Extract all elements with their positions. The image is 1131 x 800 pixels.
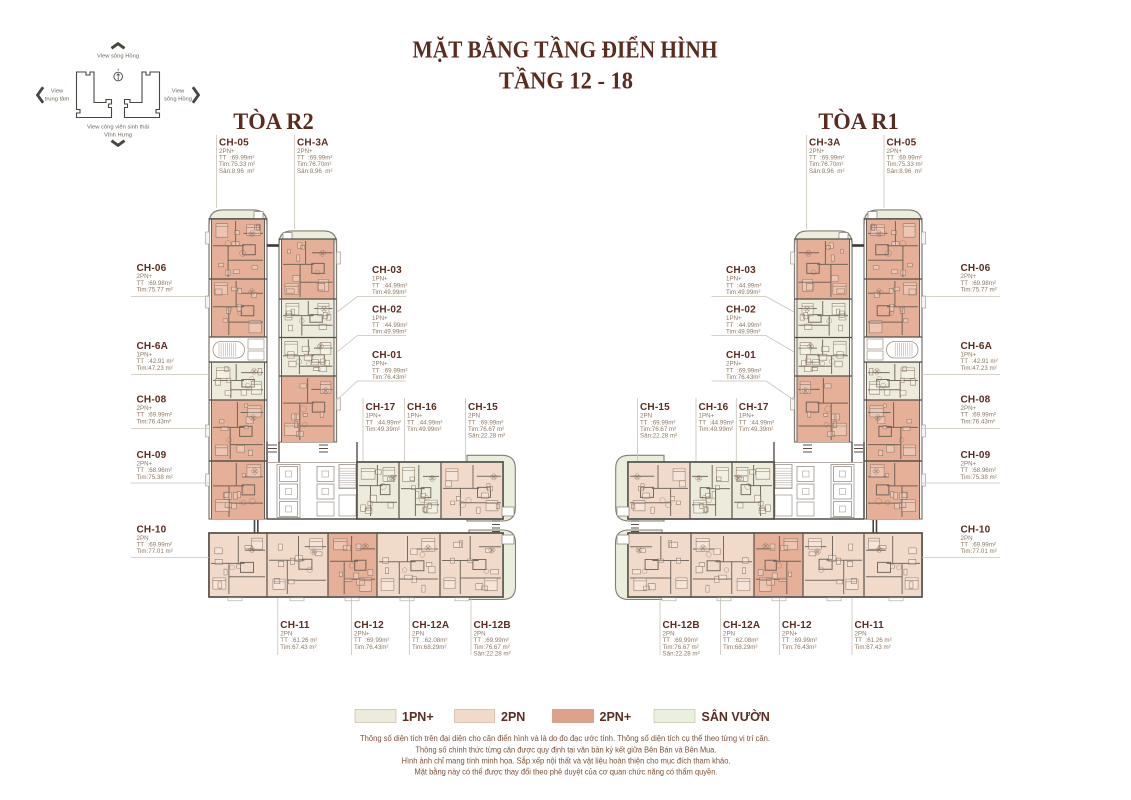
svg-text:CH-11: CH-11 <box>280 620 310 631</box>
svg-text:CH-08: CH-08 <box>137 395 167 406</box>
svg-text:CH-06: CH-06 <box>137 263 167 274</box>
svg-text:CH-01: CH-01 <box>372 350 402 361</box>
svg-text:Sân:22.28 m²: Sân:22.28 m² <box>640 433 677 440</box>
svg-text:Mặt bằng này có thể được thay: Mặt bằng này có thể được thay đổi theo p… <box>415 767 718 776</box>
svg-text:CH-16: CH-16 <box>407 402 437 413</box>
svg-text:CH-12B: CH-12B <box>474 620 511 631</box>
svg-text:Hình ảnh chỉ mang tính minh họ: Hình ảnh chỉ mang tính minh họa. Sắp xếp… <box>402 756 731 765</box>
svg-text:CH-11: CH-11 <box>855 620 885 631</box>
svg-text:CH-17: CH-17 <box>739 402 769 413</box>
svg-text:Tim:68.29m²: Tim:68.29m² <box>723 644 758 651</box>
svg-text:Tim:68.29m²: Tim:68.29m² <box>412 644 447 651</box>
svg-text:Tim:49.39m²: Tim:49.39m² <box>739 426 774 433</box>
svg-text:CH-12A: CH-12A <box>412 620 449 631</box>
svg-text:CH-15: CH-15 <box>468 402 498 413</box>
svg-text:CH-12: CH-12 <box>354 620 384 631</box>
svg-text:Tim:49.39m²: Tim:49.39m² <box>366 426 401 433</box>
svg-text:Sân:22.28 m²: Sân:22.28 m² <box>474 651 511 658</box>
svg-text:CH-10: CH-10 <box>961 524 991 535</box>
svg-text:SÂN VƯỜN: SÂN VƯỜN <box>702 709 770 724</box>
svg-text:Sân:8.96 m²: Sân:8.96 m² <box>219 168 254 175</box>
svg-text:Tim:76.43m²: Tim:76.43m² <box>726 374 761 381</box>
svg-text:Tim:49.99m²: Tim:49.99m² <box>407 426 442 433</box>
svg-text:Thông số diện tích trên đại di: Thông số diện tích trên đại diện cho căn… <box>360 734 770 743</box>
svg-text:Tim:67.43 m²: Tim:67.43 m² <box>280 644 316 651</box>
svg-text:View: View <box>51 89 64 95</box>
svg-text:CH-08: CH-08 <box>961 395 991 406</box>
svg-text:Tim:77.01 m²: Tim:77.01 m² <box>137 548 173 555</box>
svg-text:1PN+: 1PN+ <box>402 710 434 724</box>
svg-text:CH-3A: CH-3A <box>809 137 841 148</box>
svg-text:Sân:8.96 m²: Sân:8.96 m² <box>809 168 844 175</box>
svg-text:Tim:49.99m²: Tim:49.99m² <box>699 426 734 433</box>
svg-text:2PN+: 2PN+ <box>600 710 632 724</box>
svg-text:Tim:67.43 m²: Tim:67.43 m² <box>855 644 891 651</box>
svg-text:CH-6A: CH-6A <box>137 341 169 352</box>
svg-text:Tim:75.77 m²: Tim:75.77 m² <box>137 287 173 294</box>
svg-text:CH-02: CH-02 <box>372 305 402 316</box>
svg-text:Sân:22.28 m²: Sân:22.28 m² <box>663 651 700 658</box>
svg-text:CH-3A: CH-3A <box>297 137 329 148</box>
svg-text:CH-12B: CH-12B <box>663 620 700 631</box>
svg-text:TÒA R1: TÒA R1 <box>818 108 899 135</box>
svg-text:TÒA R2: TÒA R2 <box>233 108 314 135</box>
svg-text:CH-09: CH-09 <box>137 450 167 461</box>
svg-text:Tim:76.43m²: Tim:76.43m² <box>961 418 996 425</box>
svg-text:Sân:8.96 m²: Sân:8.96 m² <box>887 168 922 175</box>
svg-text:CH-12: CH-12 <box>782 620 812 631</box>
svg-text:Tim:47.23 m²: Tim:47.23 m² <box>137 365 173 372</box>
svg-text:CH-01: CH-01 <box>726 350 756 361</box>
svg-text:Tim:49.99m²: Tim:49.99m² <box>726 329 761 336</box>
svg-text:CH-06: CH-06 <box>961 263 991 274</box>
svg-text:CH-09: CH-09 <box>961 450 991 461</box>
svg-text:View công viên sinh thái: View công viên sinh thái <box>87 124 149 130</box>
svg-text:trung tâm: trung tâm <box>45 97 70 103</box>
svg-text:Tim:75.38 m²: Tim:75.38 m² <box>137 474 173 481</box>
svg-text:View sông Hồng: View sông Hồng <box>97 54 139 60</box>
svg-text:CH-10: CH-10 <box>137 524 167 535</box>
svg-text:CH-05: CH-05 <box>219 137 249 148</box>
svg-text:Sân:8.96 m²: Sân:8.96 m² <box>297 168 332 175</box>
svg-text:CH-02: CH-02 <box>726 305 756 316</box>
svg-text:CH-6A: CH-6A <box>961 341 993 352</box>
svg-text:Tim:49.99m²: Tim:49.99m² <box>372 289 407 296</box>
svg-text:Tim:77.01 m²: Tim:77.01 m² <box>961 548 997 555</box>
svg-text:Tim:76.43m²: Tim:76.43m² <box>372 374 407 381</box>
svg-text:2PN: 2PN <box>501 710 525 724</box>
svg-text:CH-17: CH-17 <box>366 402 396 413</box>
svg-text:View: View <box>172 89 185 95</box>
svg-text:Tim:75.77 m²: Tim:75.77 m² <box>961 287 997 294</box>
svg-text:Tim:49.99m²: Tim:49.99m² <box>372 329 407 336</box>
svg-text:CH-12A: CH-12A <box>723 620 760 631</box>
svg-text:Tim:76.43m²: Tim:76.43m² <box>354 644 389 651</box>
svg-text:Tim:75.38 m²: Tim:75.38 m² <box>961 474 997 481</box>
svg-text:sông Hồng: sông Hồng <box>164 97 192 103</box>
svg-text:Thông số chính thức từng căn đ: Thông số chính thức từng căn được quy đị… <box>416 745 717 754</box>
svg-text:Tim:76.43m²: Tim:76.43m² <box>782 644 817 651</box>
svg-text:Tim:49.99m²: Tim:49.99m² <box>726 289 761 296</box>
svg-text:CH-03: CH-03 <box>372 265 402 276</box>
svg-text:MẶT BẰNG TẦNG ĐIỂN HÌNH: MẶT BẰNG TẦNG ĐIỂN HÌNH <box>413 37 718 64</box>
svg-text:TẦNG 12 - 18: TẦNG 12 - 18 <box>499 67 633 94</box>
svg-text:Tim:47.23 m²: Tim:47.23 m² <box>961 365 997 372</box>
svg-text:CH-15: CH-15 <box>640 402 670 413</box>
svg-text:CH-16: CH-16 <box>699 402 729 413</box>
svg-text:CH-05: CH-05 <box>887 137 917 148</box>
svg-text:Vĩnh Hưng: Vĩnh Hưng <box>104 132 132 138</box>
svg-text:Tim:76.43m²: Tim:76.43m² <box>137 418 172 425</box>
svg-text:Sân:22.28 m²: Sân:22.28 m² <box>468 433 505 440</box>
svg-text:CH-03: CH-03 <box>726 265 756 276</box>
